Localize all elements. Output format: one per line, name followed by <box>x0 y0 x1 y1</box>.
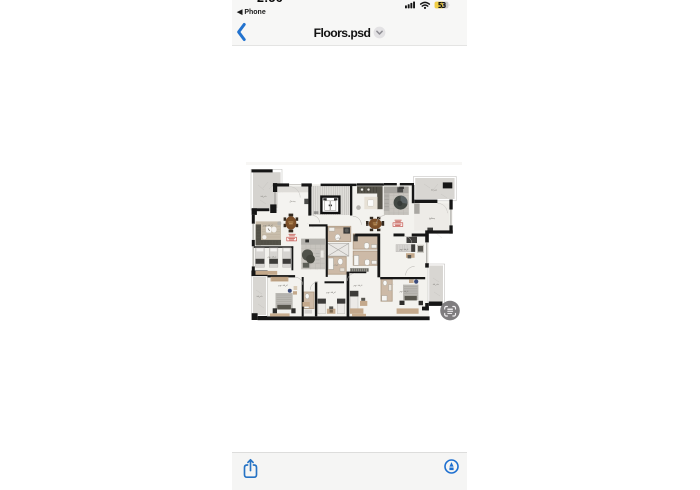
svg-text:شرفة: شرفة <box>433 283 439 286</box>
svg-text:حمام: حمام <box>334 263 339 266</box>
svg-text:غرفة نوم: غرفة نوم <box>278 284 288 287</box>
svg-text:غرفة نوم: غرفة نوم <box>399 248 409 251</box>
svg-text:مطبخ: مطبخ <box>429 217 436 220</box>
svg-text:شرفة: شرفة <box>431 189 437 192</box>
svg-text:غرفة نوم: غرفة نوم <box>399 290 409 293</box>
svg-text:غرفة نوم: غرفة نوم <box>326 291 336 294</box>
svg-text:حمام: حمام <box>337 237 342 240</box>
svg-text:غرفة نوم: غرفة نوم <box>267 255 277 258</box>
svg-text:غرفة نوم: غرفة نوم <box>263 224 273 227</box>
svg-text:غرفة نوم: غرفة نوم <box>353 284 363 287</box>
svg-text:شرفة: شرفة <box>256 295 262 298</box>
svg-text:مدخل: مدخل <box>289 200 296 203</box>
svg-text:شرفة: شرفة <box>260 195 266 198</box>
